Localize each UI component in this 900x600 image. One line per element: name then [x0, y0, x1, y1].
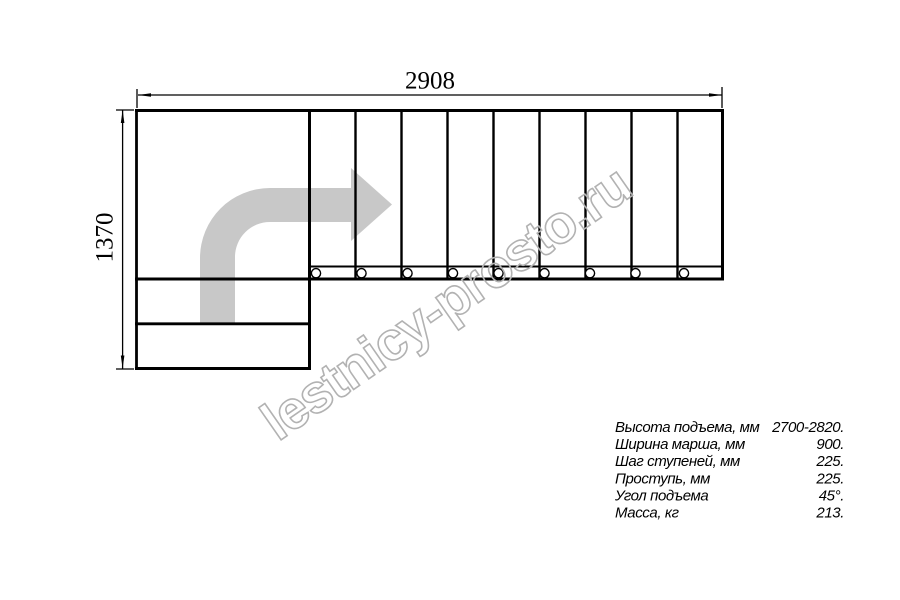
svg-text:1370: 1370: [92, 213, 119, 263]
svg-text:Угол подъема: Угол подъема: [614, 487, 708, 504]
svg-text:225.: 225.: [815, 470, 844, 487]
svg-text:2908: 2908: [405, 68, 455, 95]
svg-text:Шаг ступеней, мм: Шаг ступеней, мм: [615, 453, 740, 470]
svg-text:225.: 225.: [815, 453, 844, 470]
svg-text:2700-2820.: 2700-2820.: [771, 419, 844, 436]
svg-text:Масса, кг: Масса, кг: [615, 505, 680, 522]
svg-text:213.: 213.: [815, 505, 844, 522]
svg-text:45°.: 45°.: [819, 487, 844, 504]
svg-text:Ширина марша, мм: Ширина марша, мм: [615, 436, 745, 453]
svg-text:Высота подъема, мм: Высота подъема, мм: [615, 419, 760, 436]
svg-text:900.: 900.: [816, 436, 844, 453]
svg-text:Проступь, мм: Проступь, мм: [615, 470, 710, 487]
